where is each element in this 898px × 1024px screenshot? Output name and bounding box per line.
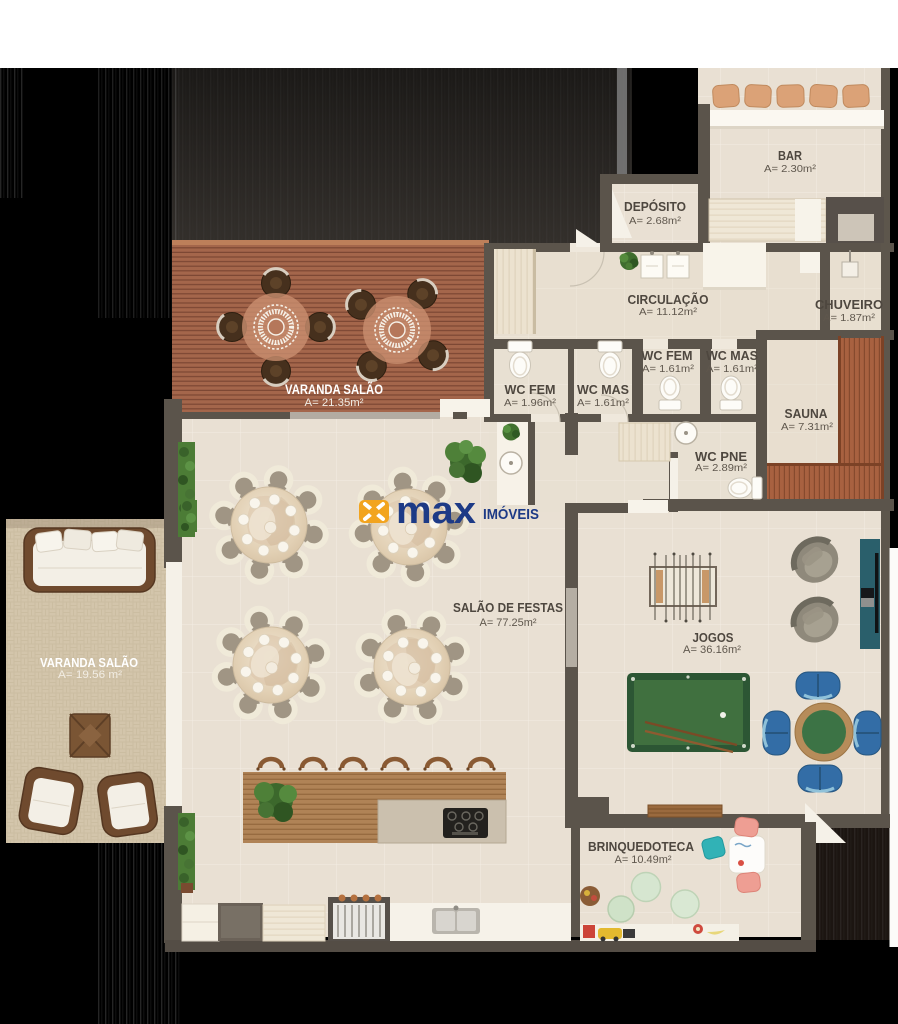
svg-text:CHUVEIRO: CHUVEIRO <box>815 298 883 312</box>
svg-text:max: max <box>396 490 476 532</box>
svg-text:IMÓVEIS: IMÓVEIS <box>483 505 539 523</box>
svg-text:WC MAS: WC MAS <box>706 349 758 363</box>
svg-text:A= 2.30m²: A= 2.30m² <box>764 163 817 175</box>
svg-text:A= 1.61m²: A= 1.61m² <box>642 363 695 375</box>
svg-text:A= 2.89m²: A= 2.89m² <box>695 462 748 474</box>
svg-text:A= 7.31m²: A= 7.31m² <box>781 421 834 433</box>
svg-text:A= 77.25m²: A= 77.25m² <box>480 617 537 629</box>
svg-text:A= 2.68m²: A= 2.68m² <box>629 215 682 227</box>
svg-text:A= 1.87m²: A= 1.87m² <box>823 312 876 324</box>
svg-text:A= 11.12m²: A= 11.12m² <box>639 306 698 318</box>
svg-text:A= 1.96m²: A= 1.96m² <box>504 397 557 409</box>
svg-text:VARANDA SALÃO: VARANDA SALÃO <box>285 382 383 397</box>
svg-text:WC FEM: WC FEM <box>505 383 556 397</box>
svg-text:BRINQUEDOTECA: BRINQUEDOTECA <box>588 839 695 854</box>
svg-text:A= 21.35m²: A= 21.35m² <box>305 397 364 409</box>
svg-text:WC MAS: WC MAS <box>577 383 629 397</box>
svg-text:VARANDA SALÃO: VARANDA SALÃO <box>40 655 138 670</box>
svg-text:SALÃO DE FESTAS: SALÃO DE FESTAS <box>453 600 563 615</box>
svg-text:SAUNA: SAUNA <box>785 407 828 421</box>
svg-text:A= 36.16m²: A= 36.16m² <box>683 644 741 656</box>
svg-text:BAR: BAR <box>778 149 802 163</box>
svg-text:A= 19.56 m²: A= 19.56 m² <box>58 669 122 681</box>
svg-text:CIRCULAÇÃO: CIRCULAÇÃO <box>628 292 709 307</box>
svg-text:A= 10.49m²: A= 10.49m² <box>615 854 672 866</box>
svg-text:A= 1.61m²: A= 1.61m² <box>706 363 759 375</box>
svg-text:DEPÓSITO: DEPÓSITO <box>624 199 686 214</box>
svg-text:WC FEM: WC FEM <box>642 349 693 363</box>
svg-text:JOGOS: JOGOS <box>693 630 734 645</box>
svg-text:A= 1.61m²: A= 1.61m² <box>577 397 630 409</box>
